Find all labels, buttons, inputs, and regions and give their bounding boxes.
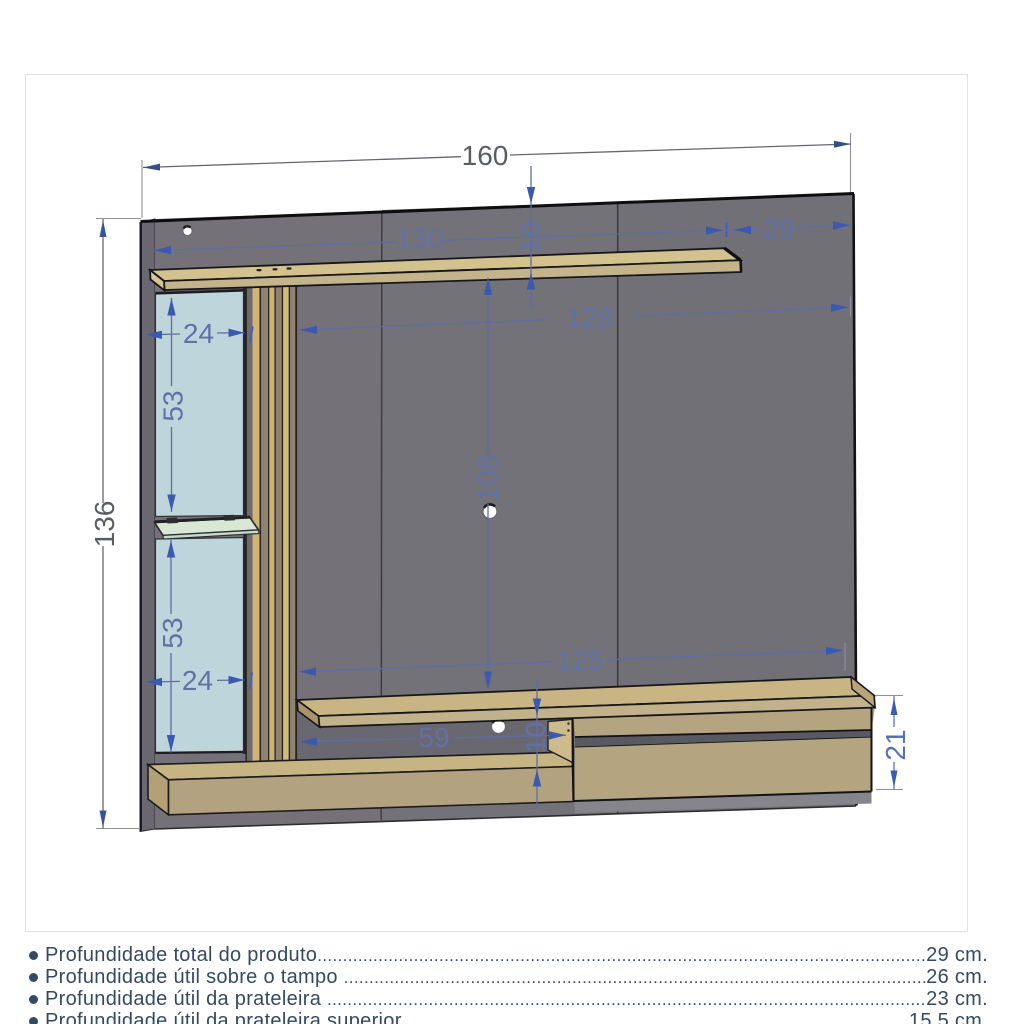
svg-text:130: 130 (397, 223, 444, 254)
svg-text:59: 59 (418, 722, 449, 753)
svg-text:136: 136 (89, 501, 120, 548)
svg-text:10: 10 (515, 221, 546, 252)
svg-text:108: 108 (472, 455, 503, 502)
svg-text:10: 10 (520, 722, 551, 753)
svg-text:53: 53 (157, 617, 188, 648)
svg-text:21: 21 (880, 729, 911, 760)
svg-text:125: 125 (557, 645, 604, 676)
svg-text:24: 24 (182, 665, 213, 696)
svg-text:53: 53 (158, 390, 189, 421)
svg-text:29: 29 (763, 213, 794, 244)
svg-text:160: 160 (462, 140, 509, 171)
svg-text:24: 24 (183, 318, 214, 349)
svg-text:128: 128 (567, 302, 614, 333)
